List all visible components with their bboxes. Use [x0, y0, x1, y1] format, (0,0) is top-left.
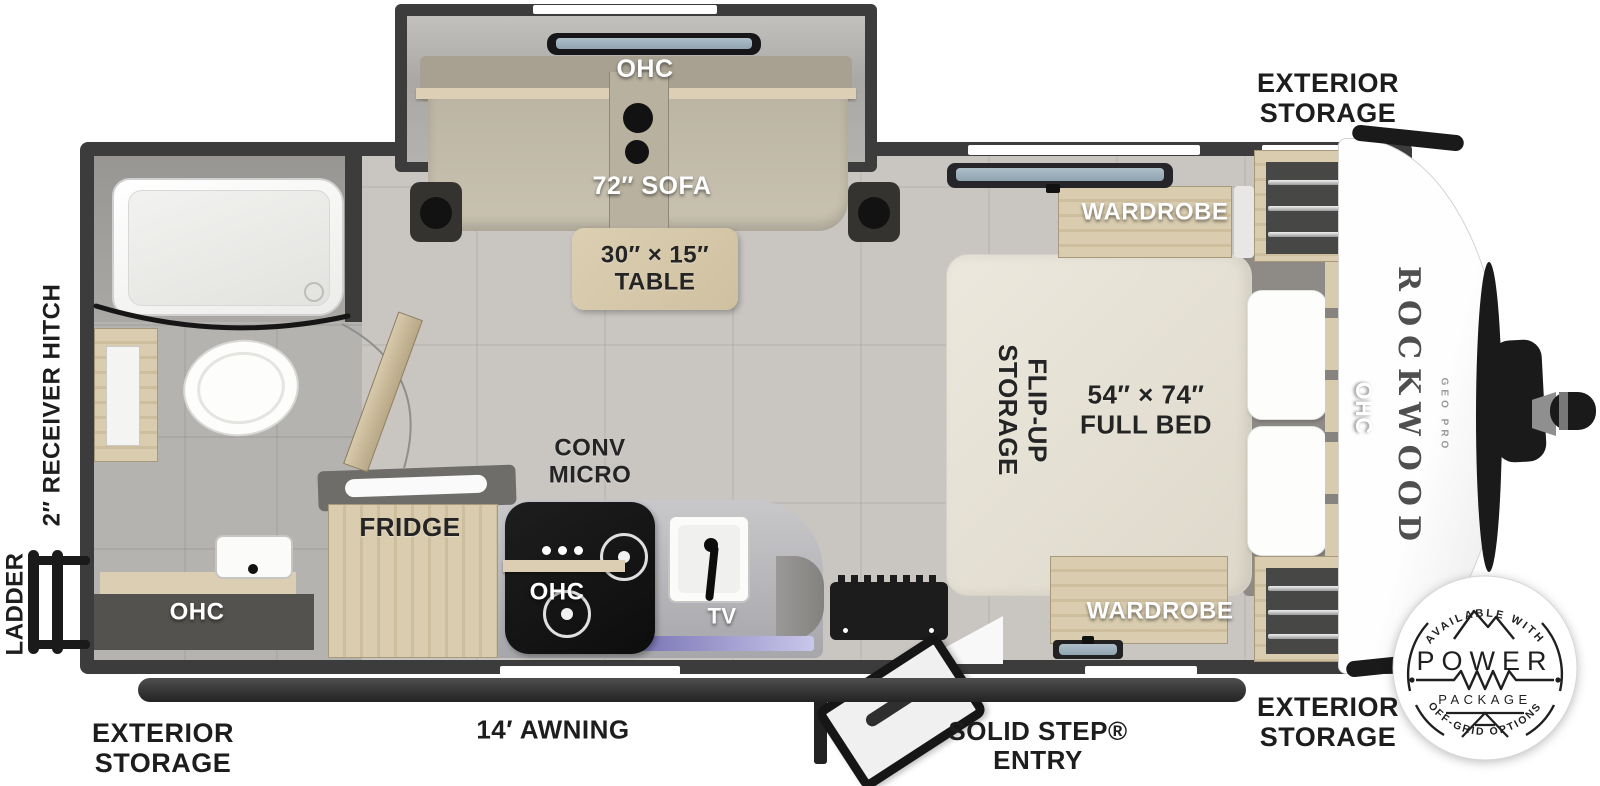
badge-dot-icon: [1409, 677, 1414, 682]
badge-package-text: PACKAGE: [1438, 692, 1531, 707]
label-exterior-storage-bottom-left: EXTERIOR STORAGE: [92, 718, 234, 778]
jack-wheel-icon: [1550, 392, 1596, 430]
brand-geo-pro: GEO PRO: [1438, 378, 1449, 453]
brand-rockwood: ROCKWOOD: [1391, 266, 1425, 550]
jack-wheel-band: [1559, 392, 1568, 430]
label-sofa: 72″ SOFA: [593, 172, 712, 201]
label-bathroom-ohc: OHC: [170, 598, 225, 625]
label-awning: 14′ AWNING: [476, 715, 629, 744]
label-ladder: LADDER: [3, 553, 30, 656]
label-table: 30″ × 15″ TABLE: [601, 242, 709, 297]
label-exterior-storage-bottom-right: EXTERIOR STORAGE: [1257, 692, 1399, 752]
label-wardrobe-top: WARDROBE: [1082, 198, 1229, 225]
label-tv: TV: [707, 603, 736, 628]
badge-dot-icon: [1555, 677, 1560, 682]
label-full-bed: 54″ × 74″ FULL BED: [1080, 380, 1212, 439]
label-wardrobe-bottom: WARDROBE: [1087, 597, 1234, 624]
power-package-badge: AVAILABLE WITH OFF-GRID OPTIONS POWER PA…: [1390, 573, 1580, 763]
label-fridge: FRIDGE: [359, 513, 460, 543]
label-slideout-ohc: OHC: [616, 55, 673, 84]
label-conv-micro: CONV MICRO: [549, 435, 632, 490]
label-kitchen-ohc: OHC: [530, 578, 585, 605]
label-solid-step-entry: SOLID STEP® ENTRY: [948, 717, 1127, 775]
floorplan-canvas: AVAILABLE WITH OFF-GRID OPTIONS POWER PA…: [0, 0, 1600, 786]
label-flip-up-storage: FLIP-UP STORAGE: [992, 344, 1051, 476]
label-bed-ohc: OHC: [1351, 382, 1377, 435]
label-receiver-hitch: 2″ RECEIVER HITCH: [40, 284, 67, 527]
label-exterior-storage-top: EXTERIOR STORAGE: [1257, 68, 1399, 128]
shower-rod-icon: [96, 306, 348, 328]
badge-power-text: POWER: [1416, 646, 1553, 676]
